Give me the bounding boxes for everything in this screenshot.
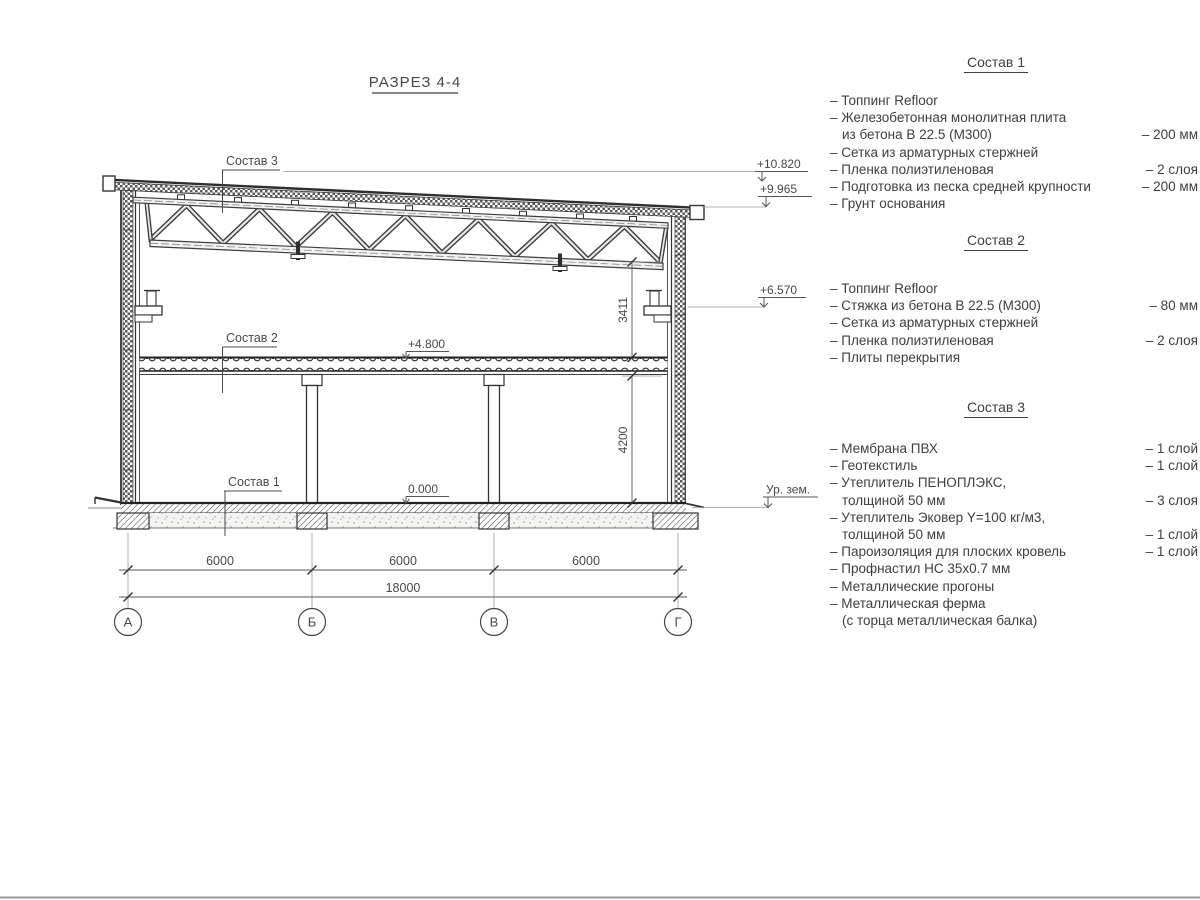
apron-left — [95, 498, 121, 503]
list-item: – Пленка полиэтиленовая– 2 слоя — [830, 161, 1198, 178]
roof-edge-cap-left — [103, 176, 115, 191]
elevation-0000-text: 0.000 — [408, 482, 438, 496]
dim-4200-text: 4200 — [616, 426, 630, 453]
elevation-mark-0000: 0.000 — [403, 482, 450, 503]
axis-A-label: А — [124, 615, 133, 630]
ground-floor — [88, 498, 704, 530]
column-axis-V — [484, 375, 504, 504]
composition-3-rows: – Мембрана ПВХ– 1 слой – Геотекстиль– 1 … — [830, 440, 1198, 629]
apron-right — [686, 504, 704, 508]
composition-2-block: Состав 2 – Топпинг Refloor – Стяжка из б… — [830, 232, 1198, 366]
elevation-ground-text: Ур. зем. — [766, 483, 810, 497]
roof-edge-cap-right — [690, 206, 704, 220]
label-sostav3-text: Состав 3 — [226, 154, 278, 168]
dim-bay-1-text: 6000 — [206, 554, 234, 568]
elevation-mark-10820: +10.820 — [755, 157, 808, 181]
vertical-dimension-4200: 4200 — [616, 372, 662, 508]
elevation-9965-text: +9.965 — [760, 182, 797, 196]
list-item: – Стяжка из бетона В 22.5 (М300)– 80 мм — [830, 297, 1198, 314]
dim-bay-2-text: 6000 — [389, 554, 417, 568]
composition-1-title: Состав 1 — [830, 54, 1198, 71]
list-item: (с торца металлическая балка) — [830, 612, 1198, 629]
label-sostav2-text: Состав 2 — [226, 331, 278, 345]
composition-3-title-text: Состав 3 — [964, 399, 1028, 418]
list-item: – Грунт основания — [830, 195, 1198, 212]
list-item: – Топпинг Refloor — [830, 92, 1198, 109]
list-item: – Сетка из арматурных стержней — [830, 314, 1198, 331]
list-item: – Топпинг Refloor — [830, 280, 1198, 297]
list-item: из бетона В 22.5 (М300)– 200 мм — [830, 126, 1198, 143]
list-item: – Профнастил НС 35х0.7 мм — [830, 560, 1198, 577]
composition-1-rows: – Топпинг Refloor – Железобетонная монол… — [830, 92, 1198, 212]
elevation-mark-4800: +4.800 — [403, 337, 450, 358]
list-item: – Металлическая ферма — [830, 595, 1198, 612]
elevation-6570-text: +6.570 — [760, 283, 797, 297]
dim-3411-text: 3411 — [616, 297, 630, 323]
horizontal-dimensions: 6000 6000 6000 18000 — [119, 533, 687, 608]
composition-2-title: Состав 2 — [830, 232, 1198, 249]
composition-1-block: Состав 1 – Топпинг Refloor – Железобетон… — [830, 54, 1198, 212]
list-item: толщиной 50 мм– 1 слой — [830, 526, 1198, 543]
dim-bay-3-text: 6000 — [572, 554, 600, 568]
second-floor-slab — [140, 358, 669, 375]
list-item: – Утеплитель ПЕНОПЛЭКС, — [830, 474, 1198, 491]
elevation-mark-ground-level: Ур. зем. — [692, 483, 818, 508]
axis-V-label: В — [490, 615, 499, 630]
list-item: – Плиты перекрытия — [830, 349, 1198, 366]
label-sostav1-text: Состав 1 — [228, 475, 280, 489]
elevation-4800-text: +4.800 — [408, 337, 445, 351]
axis-G-label: Г — [674, 615, 681, 630]
composition-3-title: Состав 3 — [830, 399, 1198, 416]
elevation-mark-9965: +9.965 — [702, 182, 812, 207]
composition-2-rows: – Топпинг Refloor – Стяжка из бетона В 2… — [830, 280, 1198, 366]
right-wall — [667, 212, 685, 505]
dim-total-text: 18000 — [386, 581, 421, 595]
drawing-title: РАЗРЕЗ 4-4 — [369, 74, 462, 93]
list-item: – Подготовка из песка средней крупности–… — [830, 178, 1198, 195]
elevation-10820-text: +10.820 — [757, 157, 801, 171]
axis-B-label: Б — [308, 615, 317, 630]
composition-2-title-text: Состав 2 — [964, 232, 1028, 251]
crane-bracket-right — [644, 291, 671, 323]
drawing-sheet: РАЗРЕЗ 4-4 — [0, 0, 1200, 900]
axis-bubbles: А Б В Г — [115, 609, 692, 636]
title-text: РАЗРЕЗ 4-4 — [369, 74, 462, 91]
list-item: – Геотекстиль– 1 слой — [830, 457, 1198, 474]
elevation-mark-6570: +6.570 — [688, 283, 806, 307]
list-item: – Сетка из арматурных стержней — [830, 144, 1198, 161]
composition-1-title-text: Состав 1 — [964, 54, 1028, 73]
list-item: – Мембрана ПВХ– 1 слой — [830, 440, 1198, 457]
materials-notes: Состав 1 – Топпинг Refloor – Железобетон… — [830, 0, 1198, 700]
list-item: – Железобетонная монолитная плита — [830, 109, 1198, 126]
list-item: толщиной 50 мм– 3 слоя — [830, 492, 1198, 509]
list-item: – Пароизоляция для плоских кровель– 1 сл… — [830, 543, 1198, 560]
sand-bedding — [117, 513, 690, 528]
list-item: – Пленка полиэтиленовая– 2 слоя — [830, 332, 1198, 349]
column-axis-B — [302, 375, 322, 504]
list-item: – Металлические прогоны — [830, 578, 1198, 595]
list-item: – Утеплитель Эковер Y=100 кг/м3, — [830, 509, 1198, 526]
composition-3-block: Состав 3 – Мембрана ПВХ– 1 слой – Геотек… — [830, 399, 1198, 629]
left-wall — [121, 183, 140, 505]
